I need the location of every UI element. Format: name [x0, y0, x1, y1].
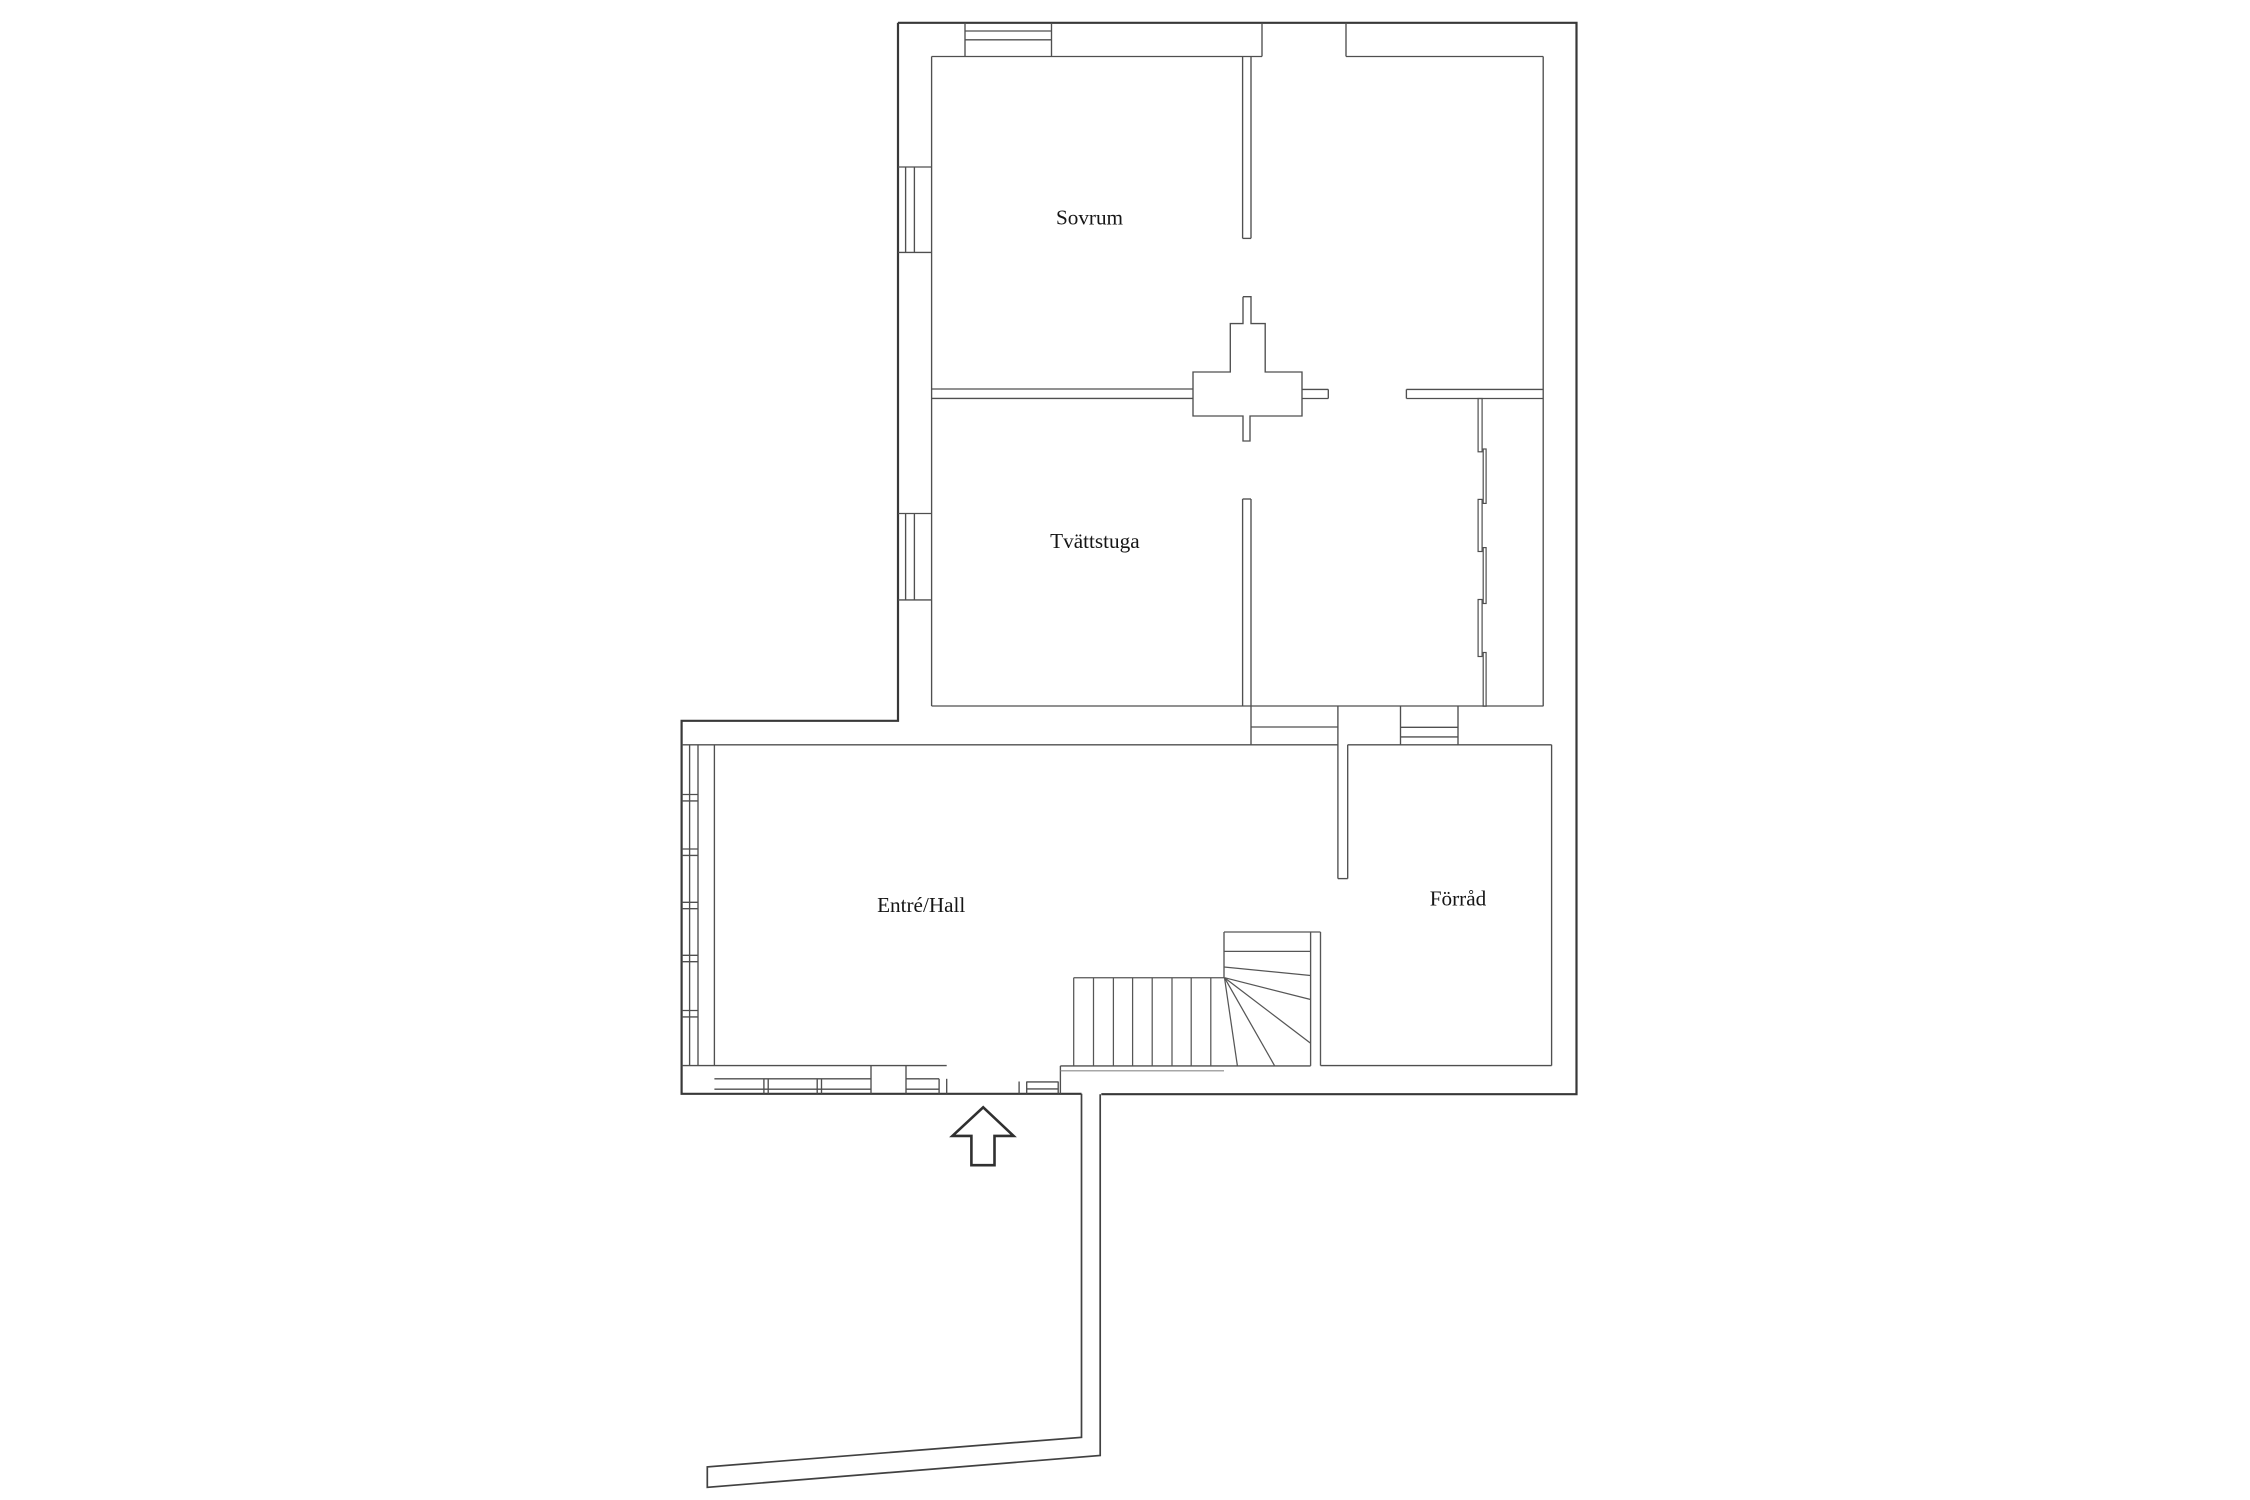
svg-text:Sovrum: Sovrum — [1056, 205, 1124, 229]
svg-text:Entré/Hall: Entré/Hall — [877, 893, 965, 917]
svg-text:Tvättstuga: Tvättstuga — [1050, 529, 1140, 553]
svg-text:Förråd: Förråd — [1430, 887, 1487, 911]
